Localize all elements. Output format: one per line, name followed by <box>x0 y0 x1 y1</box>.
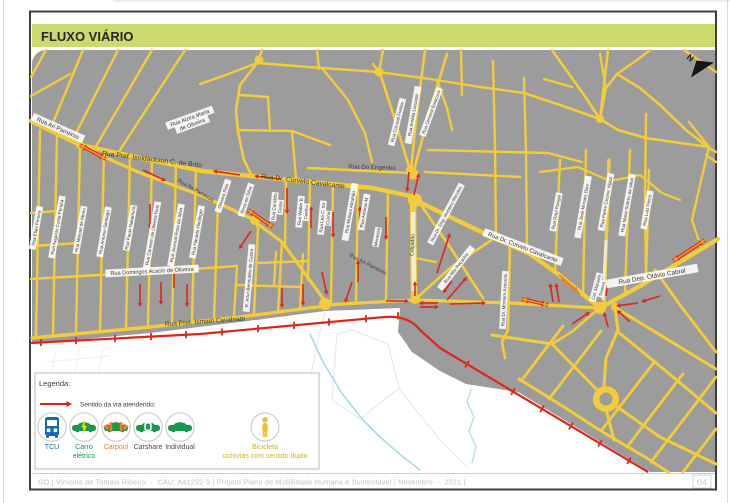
svg-text:TCU: TCU <box>45 444 59 451</box>
svg-text:Calçadão: Calçadão <box>409 234 416 256</box>
svg-text:ciclovias com sentido duplo: ciclovias com sentido duplo <box>222 453 307 460</box>
svg-text:Carro: Carro <box>75 444 93 451</box>
svg-text:Carshare: Carshare <box>134 444 163 451</box>
svg-text:04: 04 <box>697 478 708 489</box>
svg-text:FLUXO VIÁRIO: FLUXO VIÁRIO <box>41 29 133 44</box>
svg-text:Individual: Individual <box>165 444 195 451</box>
svg-text:Carpool: Carpool <box>104 444 129 451</box>
svg-text:GO | Vinícius de Tomasi Ribeir: GO | Vinícius de Tomasi Ribeiro - CAU: A… <box>38 480 466 487</box>
svg-text:Sentido da via atendendo:: Sentido da via atendendo: <box>80 402 156 409</box>
svg-text:elétrico: elétrico <box>73 453 96 460</box>
svg-text:Bicicleta: Bicicleta <box>252 444 278 451</box>
svg-text:Legenda:: Legenda: <box>39 379 70 388</box>
